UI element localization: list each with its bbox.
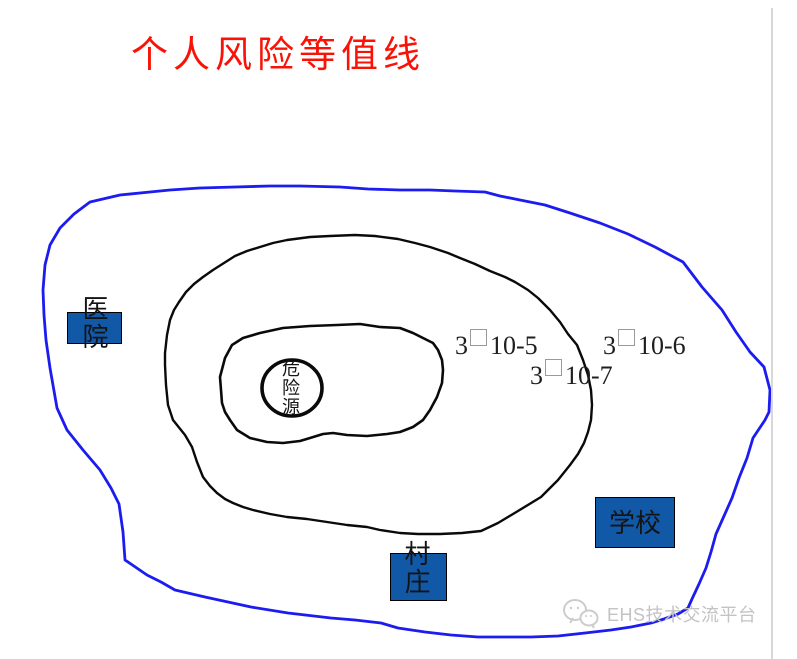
risk-level-label-3e-7: 3□10-7 [530,360,613,391]
page-title: 个人风险等值线 [131,24,425,78]
hazard-source-label: 危险源 [281,360,301,417]
risk-label-exponent: 10-7 [565,361,613,390]
risk-label-value: 3 [530,361,543,390]
risk-level-label-3e-5: 3□10-5 [455,330,538,361]
risk-contour-figure: 个人风险等值线 医院 学校 村庄 危险源 3□10-5 3□10-6 3□10-… [0,0,797,659]
watermark-text: EHS技术交流平台 [607,601,757,627]
page-edge-divider [771,8,773,659]
village-label: 村庄 [404,541,431,597]
risk-label-exponent: 10-5 [490,331,538,360]
school-label: 学校 [597,511,673,537]
chat-bubbles-logo-icon [560,597,602,631]
watermark: EHS技术交流平台 [560,597,757,631]
risk-label-value: 3 [455,331,468,360]
risk-level-label-3e-6: 3□10-6 [603,330,686,361]
hospital-label: 医院 [82,296,109,352]
risk-label-value: 3 [603,331,616,360]
middle-risk-contour-line [165,235,592,534]
missing-glyph-box: □ [470,329,487,346]
inner-risk-contour-line [220,324,443,443]
risk-label-exponent: 10-6 [638,331,686,360]
missing-glyph-box: □ [618,329,635,346]
missing-glyph-box: □ [545,359,562,376]
